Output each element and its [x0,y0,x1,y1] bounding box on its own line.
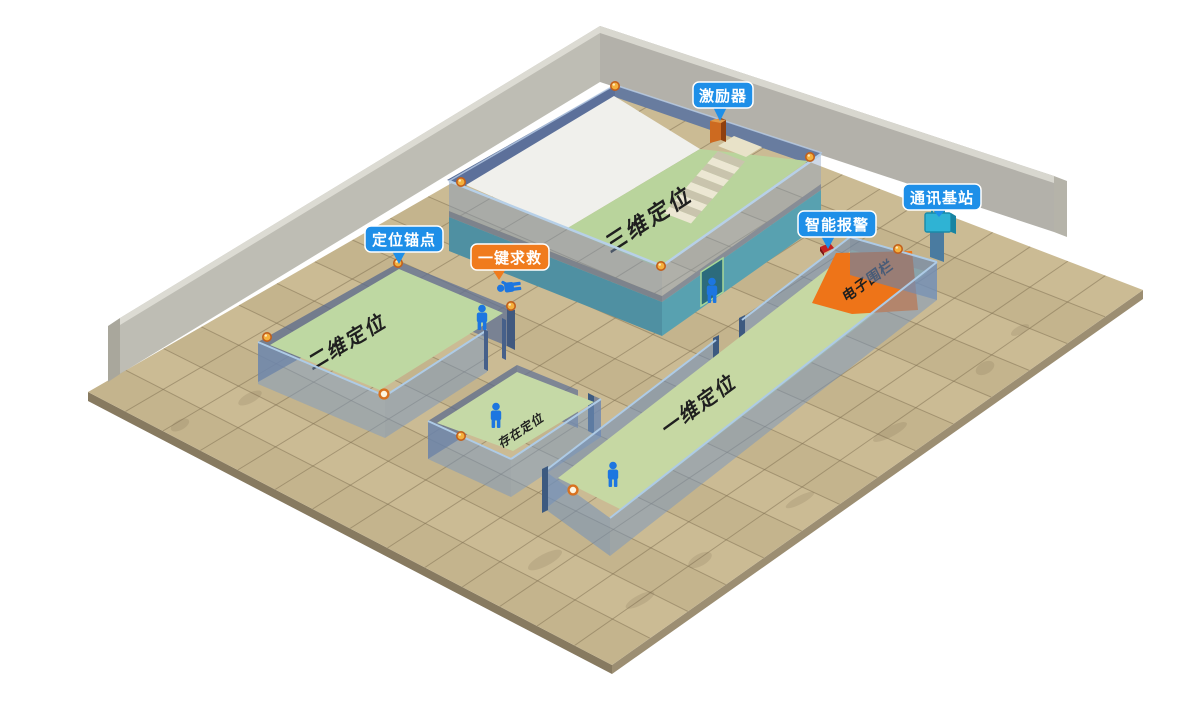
anchor-icon [263,333,271,341]
badge-label: 激励器 [699,87,747,105]
left-wall-endcap [108,318,120,382]
positioning-diagram: 二维定位 存在定位 三维定位 [0,0,1200,723]
zone-2d-door-post-left [484,329,488,371]
anchor-icon [611,82,619,90]
anchor-ring-icon [569,486,578,495]
badge-label: 通讯基站 [910,189,974,207]
anchor-icon [657,262,665,270]
badge-label: 定位锚点 [372,231,436,249]
zone-2d-door-post-right [502,318,506,360]
diagram-stage: 二维定位 存在定位 三维定位 [0,0,1200,723]
corridor-sw-post [542,466,548,513]
anchor-icon [457,432,465,440]
anchor-ring-icon [380,390,389,399]
right-wall-endcap [1054,176,1067,237]
exciter-device-icon [710,118,726,143]
badge-label: 一键求救 [478,249,542,267]
badge-label: 智能报警 [805,216,869,234]
anchor-icon [806,153,814,161]
anchor-icon [457,178,465,186]
anchor-icon [507,302,515,310]
zone-2d-corner-post [507,306,515,350]
anchor-icon [894,245,902,253]
